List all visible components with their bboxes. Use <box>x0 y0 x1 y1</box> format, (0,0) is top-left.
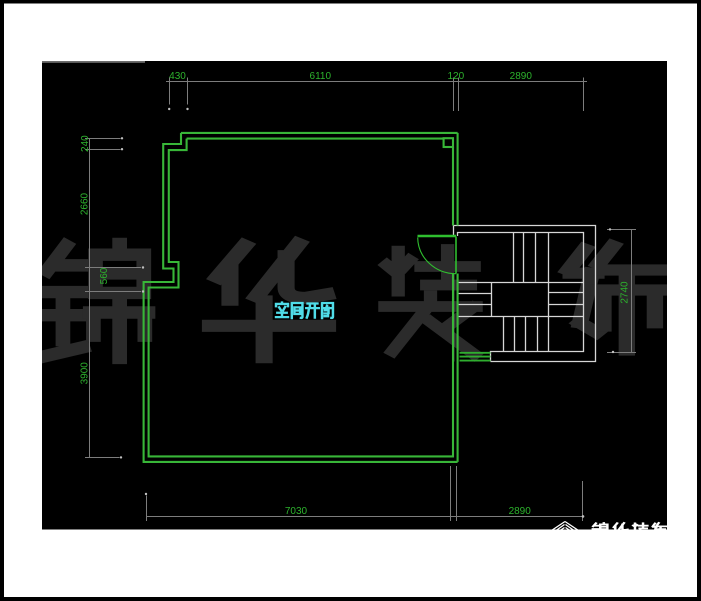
svg-text:120: 120 <box>447 71 464 82</box>
svg-text:2890: 2890 <box>509 506 532 517</box>
svg-text:430: 430 <box>169 71 186 82</box>
svg-text:240: 240 <box>80 135 91 152</box>
svg-text:3900: 3900 <box>80 362 91 385</box>
svg-text:2660: 2660 <box>80 192 91 215</box>
svg-text:6110: 6110 <box>310 71 332 82</box>
svg-text:2740: 2740 <box>620 281 631 304</box>
svg-text:7030: 7030 <box>285 506 308 517</box>
svg-text:560: 560 <box>99 267 110 284</box>
svg-text:2890: 2890 <box>510 71 533 82</box>
